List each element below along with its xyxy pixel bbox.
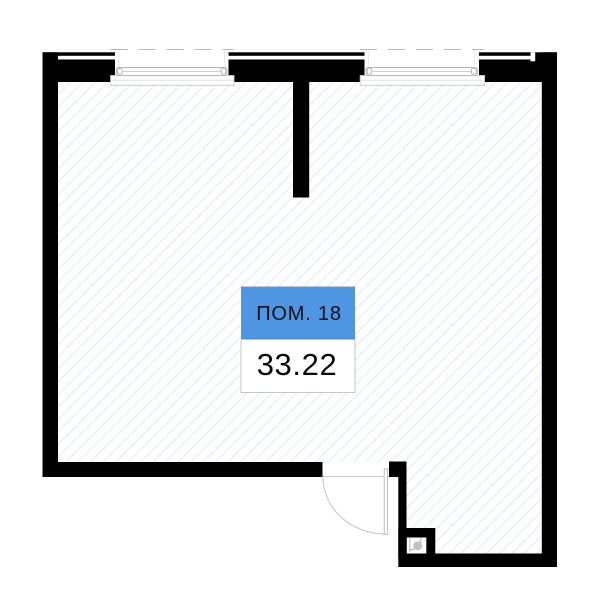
svg-text:33.22: 33.22 (257, 347, 338, 382)
svg-text:ПОМ. 18: ПОМ. 18 (256, 303, 342, 325)
